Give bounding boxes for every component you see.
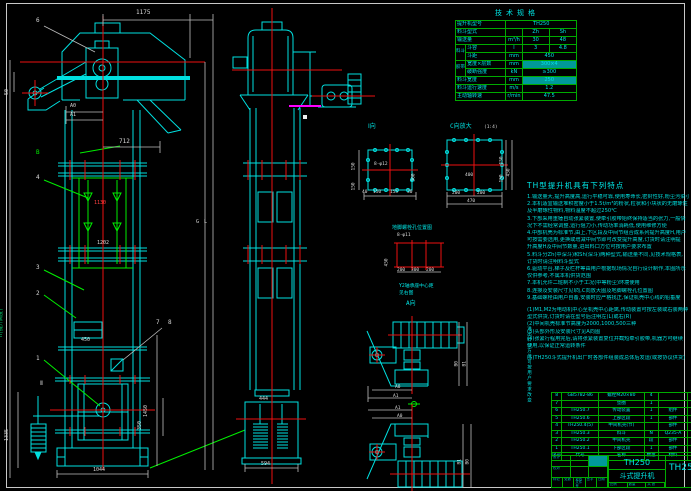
view-label-anchor-plan: 地脚螺栓孔位置图: [392, 226, 432, 231]
dim-label: 1335: [5, 429, 10, 441]
sign-label: 校对: [552, 467, 571, 477]
sign-cell: [589, 467, 608, 477]
spec-unit: l: [506, 45, 522, 53]
bom-cell: 7: [552, 400, 562, 408]
dim-label: 50: [5, 89, 10, 95]
title-block-revision-area: 设计 校对 标记 处数 更改文件号 签字 日期: [551, 455, 609, 488]
spec-group: 胶带: [456, 61, 466, 77]
note-line: 使用,以保证正常运转条件: [527, 343, 689, 350]
note-line: 升高度H及中间节数量,进出料口方位可按用户要求布置: [527, 244, 689, 251]
dim-label: 300: [411, 269, 419, 274]
front-view-green-parts: [44, 146, 245, 468]
spec-value: Zh: [522, 29, 549, 37]
balloon-3: 3: [36, 265, 40, 271]
dim-label: H(提升高度): [0, 308, 4, 337]
note-line: (1)M1,M2为电动机中心至机壳中心距离,传动装置可按左装或右装两种: [527, 307, 689, 314]
dim-label: 200: [477, 192, 485, 197]
dim-label: 444: [259, 397, 268, 402]
dim-label: 450: [81, 338, 90, 343]
bom-cell: 部件: [658, 423, 688, 431]
feature-notes: TH型提升机具有下列特点 1.输送量大,提升高度高,运行平稳可靠,使用寿命长,密…: [527, 180, 689, 362]
bom-cell: N: [644, 430, 658, 438]
dim-label: (1:4): [484, 126, 498, 131]
note-line: 1.输送量大,提升高度高,运行平稳可靠,使用寿命长,密封性好,粉尘污染小: [527, 194, 689, 201]
spec-unit: kN: [506, 69, 522, 77]
rev-label: 标记: [552, 478, 563, 488]
view-label-C: C向放大: [450, 124, 472, 130]
dim-label: 1130: [94, 201, 106, 206]
spec-unit: mm: [506, 77, 522, 85]
spec-label: 输送量: [456, 37, 506, 45]
dim-label: A0: [70, 104, 76, 109]
note-line: (5)TH250斗式提升机出厂时各部件组装成总体后发运(或按协议供货): [527, 355, 689, 362]
bom-row: 5TH250.6上部区段1部件: [552, 415, 691, 423]
spec-table: 技术规格 提升机型号 TH250 料斗型式 Zh Sh 输送量 m³/h 30 …: [455, 8, 579, 101]
bom-cell: GB5782-86: [562, 393, 599, 401]
spec-label: 料斗运行速度: [456, 85, 506, 93]
dim-label: L: [204, 220, 207, 225]
spec-unit: mm: [506, 53, 522, 61]
dim-label: 8-φ11: [397, 234, 411, 239]
dim-label: 1450: [144, 405, 149, 417]
datum-square: [303, 115, 307, 119]
drawing-number: TH250: [666, 456, 691, 480]
bom-row: 2TH250.2中间机壳段部件: [552, 438, 691, 446]
bom-cell: 5: [552, 415, 562, 423]
note-line: 型式供货,订货时请在型号后注明左(L)或右(R): [527, 314, 689, 321]
bom-cell: 传动装置: [598, 408, 644, 416]
spec-value: 48: [549, 37, 576, 45]
bom-cell: 3: [552, 430, 562, 438]
note-line: 8.连接及安装尺寸见Ⅰ向,C向放大图及地脚螺栓孔位置图: [527, 288, 689, 295]
sign-cell: [571, 456, 590, 466]
bom-row: 8GB5782-86螺栓M20×8040.09: [552, 393, 691, 401]
dim-label: B0: [456, 361, 461, 366]
spec-label: 宽度×层数: [466, 61, 506, 69]
note-line: 6.驱动平台,梯子及栏杆等由用户根据现场情况自行设计制作,本图所示: [527, 266, 689, 273]
bom-cell: 1: [644, 415, 658, 423]
bom-cell: 段: [644, 438, 658, 446]
spec-label: 斗距: [466, 53, 506, 61]
dim-label: A1: [393, 395, 398, 400]
dim-label: B1: [459, 459, 464, 464]
head-plan-view-2: [367, 424, 462, 487]
balloon-6: 6: [36, 18, 40, 24]
note-line: 7.本机允许二班制不小于工况(中等粉尘)环境使用: [527, 280, 689, 287]
balloon-4: 4: [36, 175, 40, 181]
takeup-springs: [253, 424, 288, 448]
bom-cell: [644, 423, 658, 431]
spec-value: 450: [522, 53, 576, 61]
rev-label: 处数: [563, 478, 574, 488]
title-block-drawing-no-area: TH250: [665, 455, 691, 488]
dim-label: B1: [464, 361, 469, 366]
rev-label: 日期: [597, 478, 608, 488]
dim-label: 150: [501, 156, 506, 164]
dim-label: G: [196, 220, 199, 225]
bom-cell: 部件: [658, 415, 688, 423]
spec-value: 47.5: [522, 93, 576, 101]
balloon-7: 7: [156, 320, 160, 326]
bom-cell: 组件: [658, 408, 688, 416]
bom-cell: 料斗: [598, 430, 644, 438]
bom-cell: 螺栓M20×80: [598, 393, 644, 401]
dim-label: 1044: [93, 468, 105, 473]
dim-label: 712: [119, 139, 130, 145]
sheet-label: 共 张: [646, 483, 665, 488]
spec-unit: mm: [506, 61, 522, 69]
section-mark-line: [80, 146, 245, 468]
spec-label: 提升机型号: [456, 21, 506, 29]
dim-label: 200: [397, 269, 405, 274]
note-line: 可按需要选用,更换或增减中间节即可改变提升高度,订货时请注明提: [527, 237, 689, 244]
bom-cell: [658, 400, 688, 408]
centerlines-red: [20, 8, 508, 491]
sign-cell-highlight: [589, 456, 608, 466]
balloon-8: 8: [168, 320, 172, 326]
bom-cell: TH250.3: [562, 430, 599, 438]
dim-label: 见右图: [399, 292, 413, 297]
qty-label: 数量: [628, 483, 647, 488]
balloon-B: B: [36, 150, 40, 156]
spec-unit: m/s: [506, 85, 522, 93]
sign-cell: [571, 467, 590, 477]
dim-label: 150: [373, 191, 381, 196]
spec-value: 4.8: [549, 45, 576, 53]
bom-cell: TH250.2: [562, 438, 599, 446]
bom-row: 7垫圈10.05: [552, 400, 691, 408]
dim-label: 1202: [97, 241, 109, 246]
balloon-2: 2: [36, 291, 40, 297]
dim-label: 200: [452, 192, 460, 197]
note-line: 仅供参考,不属本机供货范围: [527, 273, 689, 280]
spec-label: 斗容: [466, 45, 506, 53]
spec-group: 料斗: [456, 45, 466, 61]
rotation-symbol: [408, 402, 420, 407]
bom-cell: 1: [644, 408, 658, 416]
title-block-name-area: TH250 斗式提升机 比例 数量 共 张: [608, 455, 666, 488]
bom-cell: TH250.4(5): [562, 423, 599, 431]
drive-platform: [57, 76, 190, 80]
bom-row: 6TH250.7传动装置1组件: [552, 408, 691, 416]
anchor-bolt-plan: [394, 240, 444, 270]
spec-label: 破断强度: [466, 69, 506, 77]
spec-value: 30: [522, 37, 549, 45]
note-line: 5.料斗分Zh(中深斗)和Sh(深斗)两种型式,输送量不同,见技术规格表,: [527, 252, 689, 259]
sign-label: 设计: [552, 456, 571, 466]
note-line: 3.下部采用重锤自动张紧装置,使牵引胶带始终保持适当的张力,一般情: [527, 216, 689, 223]
dim-label: 200: [426, 269, 434, 274]
bom-cell: [658, 393, 688, 401]
spec-label: 主动轴转速: [456, 93, 506, 101]
spec-value: ≥300: [522, 69, 576, 77]
dim-label: 470: [467, 200, 475, 205]
dim-label: 150: [353, 182, 358, 190]
spec-unit: [506, 29, 522, 37]
cad-drawing-canvas: 61175712A0A150B41130120232178Ⅱ4501335145…: [0, 0, 691, 491]
balloon-1: 1: [36, 356, 40, 362]
tension-weight: [31, 396, 46, 459]
spec-label: 料斗宽度: [456, 77, 506, 85]
bom-cell: 8: [552, 393, 562, 401]
bom-cell: 部件: [658, 438, 688, 446]
bom-cell: Q235-A: [658, 430, 688, 438]
bom-cell: [562, 400, 599, 408]
dim-label: 155: [390, 191, 398, 196]
note-line: (2)中间机壳标准节高度为2000,1000,500三种: [527, 321, 689, 328]
dim-label: A1: [395, 407, 400, 412]
bom-cell: TH250.7: [562, 408, 599, 416]
note-line: 及半磨琢性物料,物料温度不超过250℃: [527, 208, 689, 215]
dim-label: B0: [467, 459, 472, 464]
dim-label: A0: [395, 386, 400, 391]
rev-label: 更改文件号: [574, 478, 585, 488]
bom-cell: 4: [644, 393, 658, 401]
note-line: 况下不需经常调整,运行阻力小,传动功率消耗低,使用维修方便: [527, 223, 689, 230]
dim-label: A1: [70, 113, 76, 118]
spec-label: 料斗型式: [456, 29, 506, 37]
bearing-block: [233, 57, 247, 68]
spec-unit: r/min: [506, 93, 522, 101]
bom-cell: 垫圈: [598, 400, 644, 408]
bom-cell: 2: [552, 438, 562, 446]
dim-label: 594: [261, 462, 270, 467]
note-line: 订货时请注明料斗型式: [527, 259, 689, 266]
spec-unit: m³/h: [506, 37, 522, 45]
rev-label: 签字: [586, 478, 597, 488]
bom-cell: TH250.6: [562, 415, 599, 423]
dim-label: 150: [501, 174, 506, 182]
spec-value: TH250: [506, 21, 577, 29]
dim-label: A0: [397, 415, 402, 420]
scale-label: 比例: [609, 483, 628, 488]
dim-label: 40: [362, 191, 367, 196]
dim-label: 350: [138, 421, 143, 430]
dim-label: 450: [508, 168, 513, 176]
backstop-arm: [28, 62, 86, 110]
dim-label: 300: [413, 173, 418, 181]
head-plan-view-1: [367, 322, 464, 386]
bom-cell: 中间机壳(节): [598, 423, 644, 431]
guard-frame: [348, 74, 361, 104]
title-block: 设计 校对 标记 处数 更改文件号 签字 日期 TH250 斗式提升机 比例: [551, 450, 691, 488]
bom-row: 3TH250.3料斗NQ235-A204: [552, 430, 691, 438]
bom-cell: 4: [552, 423, 562, 431]
dim-label: 8-φ12: [374, 163, 388, 168]
view-label-I: Ⅰ向: [368, 124, 376, 130]
note-line: (4)张紧行程用完后,请将张紧装置复位并截短牵引胶带,机器方可继续: [527, 336, 689, 343]
note-line: (3)头部外形及安装尺寸见A向图: [527, 329, 689, 336]
spec-value: Sh: [549, 29, 576, 37]
product-model: TH250: [609, 456, 665, 470]
spec-value: 250: [522, 77, 576, 85]
spec-value: 1.2: [522, 85, 576, 93]
dim-label: Ⅱ: [40, 381, 43, 387]
feature-notes-lines: 1.输送量大,提升高度高,运行平稳可靠,使用寿命长,密封性好,粉尘污染小2.本机…: [527, 194, 689, 362]
bom-cell: 上部区段: [598, 415, 644, 423]
dim-label: 450: [386, 258, 391, 266]
feature-notes-title: TH型提升机具有下列特点: [527, 180, 689, 191]
note-line: 9.基础螺栓由用户自备,安装时应严格找正,保证机壳中心线的铅垂度: [527, 295, 689, 302]
dim-label: 30: [407, 191, 412, 196]
note-line: 2.本机适宜输送堆积密度小于1.5t/m³的粉状,粒状和小块状的无磨琢性: [527, 201, 689, 208]
spec-table-title: 技术规格: [455, 8, 579, 18]
dim-label: Y2轴承座中心距: [399, 285, 434, 290]
note-line: 4.中部机壳为标准节,由上,下区段及中间节组合成系列提升高度H,用户: [527, 230, 689, 237]
view-label-A: A向: [406, 301, 416, 307]
bom-cell: 中间机壳: [598, 438, 644, 446]
bom-cell: 1: [644, 400, 658, 408]
product-name: 斗式提升机: [609, 470, 665, 483]
dim-label: 400: [465, 174, 473, 179]
spec-value: 3: [522, 45, 549, 53]
dim-label: 1175: [136, 10, 150, 16]
bom-row: 4TH250.4(5)中间机壳(节)部件: [552, 423, 691, 431]
side-view: [233, 22, 361, 464]
spec-value: 300×4: [522, 61, 576, 69]
dim-label: 150: [353, 162, 358, 170]
bom-cell: 6: [552, 408, 562, 416]
